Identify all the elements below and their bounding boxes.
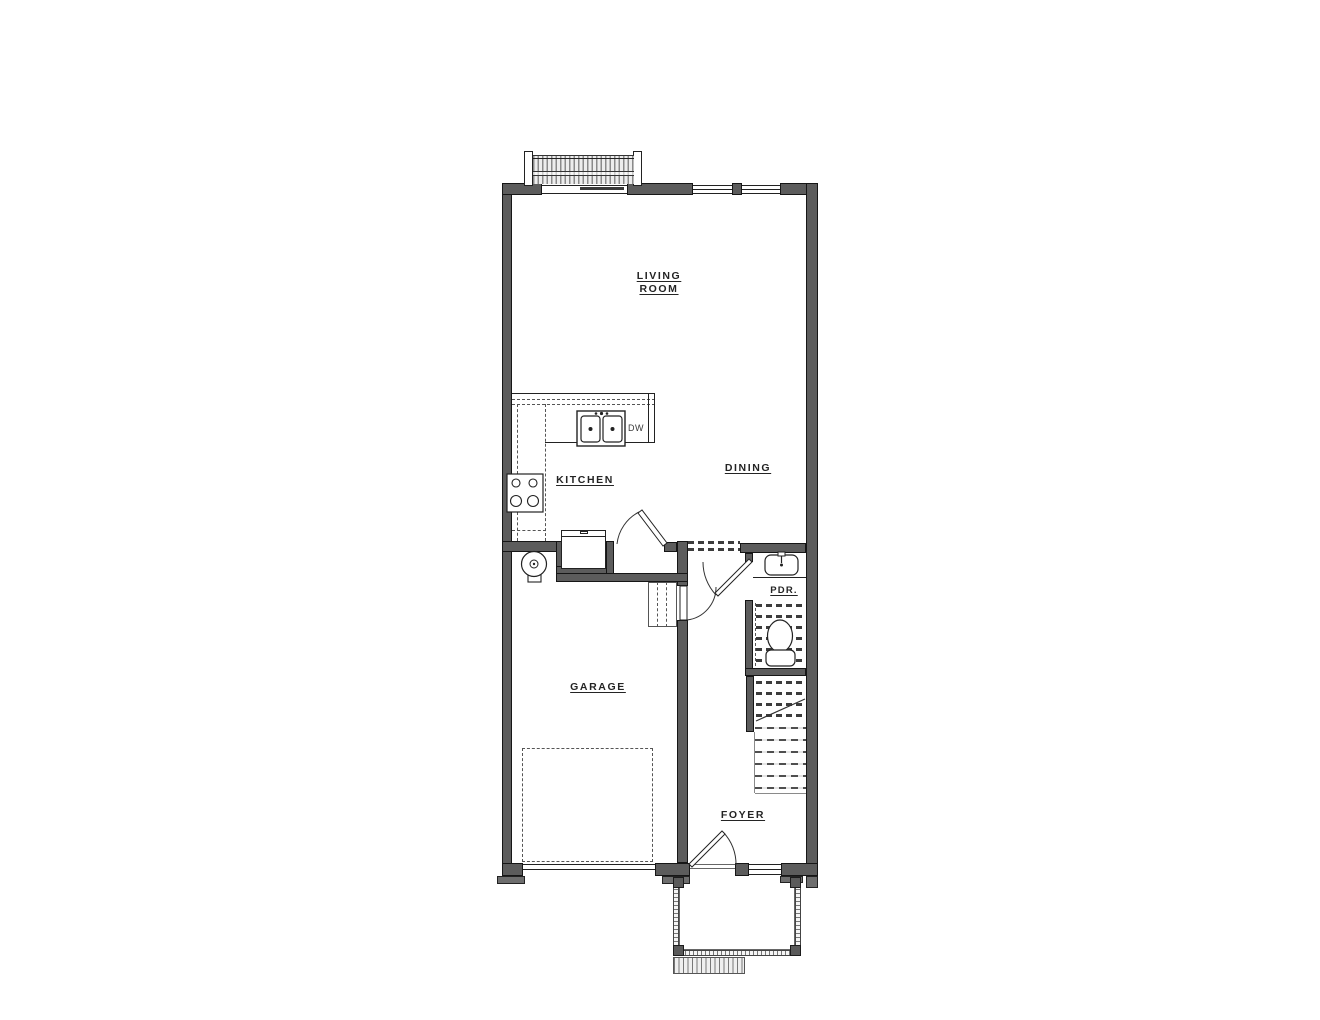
garage-entry-door bbox=[680, 586, 716, 620]
label-living-room-line2: ROOM bbox=[589, 283, 729, 296]
front-door bbox=[689, 831, 736, 867]
label-living-room-line1: LIVING bbox=[589, 270, 729, 283]
label-powder-room: PDR. bbox=[714, 584, 854, 597]
toilet bbox=[766, 620, 795, 666]
label-foyer: FOYER bbox=[673, 809, 813, 822]
kitchen-sink bbox=[577, 411, 625, 446]
stair-direction-line bbox=[756, 699, 805, 721]
label-kitchen: KITCHEN bbox=[515, 474, 655, 487]
label-living-room: LIVING ROOM bbox=[589, 270, 729, 296]
closet-door bbox=[617, 510, 667, 546]
label-garage: GARAGE bbox=[528, 681, 668, 694]
label-dining: DINING bbox=[678, 462, 818, 475]
floor-plan: LIVING ROOM KITCHEN DINING GARAGE FOYER … bbox=[0, 0, 1320, 1020]
fixtures-overlay bbox=[0, 0, 1320, 1020]
label-dishwasher: DW bbox=[628, 423, 644, 433]
water-heater bbox=[522, 552, 547, 583]
pdr-sink bbox=[765, 552, 798, 575]
